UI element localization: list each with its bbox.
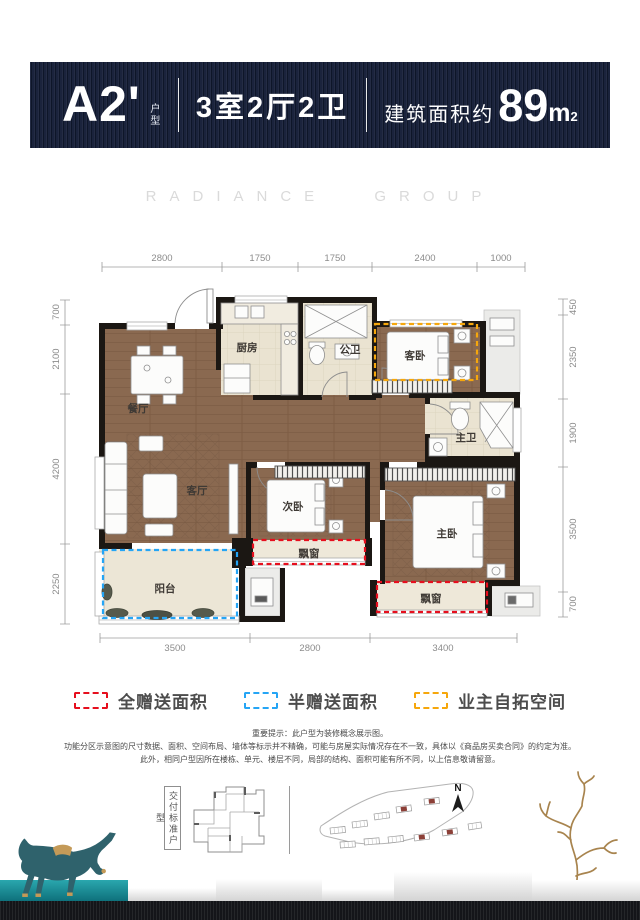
legend-item-full-gift: 全赠送面积 [74, 688, 208, 713]
header-divider [178, 78, 179, 132]
sofa [105, 442, 127, 534]
area-value: 89 [498, 83, 548, 128]
armchair [139, 436, 163, 451]
dim-right-4: 3500 [568, 518, 579, 539]
room-label-second-bedroom: 次卧 [283, 500, 304, 513]
dim-left-4: 2250 [51, 573, 62, 594]
footer-divider [289, 786, 290, 854]
disclaimer-line: 重要提示：此户型为装修概念展示图。 [30, 727, 610, 740]
dim-right-2: 2350 [568, 346, 579, 367]
legend: 全赠送面积 半赠送面积 业主自拓空间 [0, 688, 640, 713]
disclaimer-line: 此外，相同户型因所在楼栋、单元、楼层不同，局部的结构、面积可能有所不同，以上信息… [30, 753, 610, 766]
floor-plan: 餐厅 厨房 公卫 客卧 主卫 客厅 次卧 主卧 阳台 飘窗 飘窗 2800 17… [35, 252, 580, 652]
room-label-guest-bedroom: 客卧 [404, 349, 426, 362]
highlighted-building [396, 805, 412, 813]
site-plan-sketch: N [318, 780, 513, 868]
area-prefix: 建筑面积约 [384, 98, 494, 127]
dim-top-5: 1000 [490, 253, 511, 264]
dim-bottom-3: 3400 [432, 643, 453, 652]
owner-expand-swatch-icon [414, 692, 448, 709]
area-block: 建筑面积约 89 m 2 [384, 83, 578, 128]
dim-top-4: 2400 [414, 253, 435, 264]
dining-table [131, 356, 183, 394]
half-gift-swatch-icon [244, 692, 278, 709]
full-gift-swatch-icon [74, 692, 108, 709]
room-label-public-bath: 公卫 [340, 344, 361, 356]
dim-left-1: 700 [51, 304, 62, 320]
mini-floorplan-sketch [186, 782, 270, 860]
area-unit: m [548, 99, 570, 128]
dim-left-3: 4200 [51, 458, 62, 479]
unit-type-label: 户型 [146, 103, 161, 127]
toilet [452, 408, 469, 430]
room-label-master-bath: 主卫 [456, 431, 477, 444]
brochure-page: A2' 户型 3室2厅2卫 建筑面积约 89 m 2 RADIANCE GROU… [0, 0, 640, 920]
delivery-standard-label: 交付标准户型 [164, 786, 181, 850]
unit-code: A2' [62, 81, 141, 129]
highlighted-building [414, 833, 430, 841]
skyline-block [216, 879, 322, 902]
legend-item-half-gift: 半赠送面积 [244, 688, 378, 713]
room-label-kitchen: 厨房 [237, 341, 258, 354]
dim-right-3: 1900 [568, 422, 579, 443]
dim-top-2: 1750 [249, 253, 270, 264]
skyline-block [532, 880, 640, 902]
compass-icon: N [452, 783, 464, 812]
legend-label: 业主自拓空间 [458, 688, 566, 713]
dim-right-1: 450 [568, 299, 579, 315]
legend-label: 半赠送面积 [288, 688, 378, 713]
dim-bottom-2: 2800 [299, 643, 320, 652]
coffee-table [143, 474, 177, 518]
header-band: A2' 户型 3室2厅2卫 建筑面积约 89 m 2 [30, 62, 610, 148]
toilet [310, 346, 325, 365]
dark-footer-band [0, 901, 640, 920]
skyline-block [394, 872, 532, 902]
brand-watermark: RADIANCE GROUP [0, 188, 640, 205]
highlighted-building [424, 797, 440, 805]
skyline-block [128, 888, 216, 902]
disclaimer: 重要提示：此户型为装修概念展示图。 功能分区示意图的尺寸数据、面积、空间布局、墙… [30, 727, 610, 766]
dim-top-1: 2800 [151, 253, 172, 264]
room-label-balcony: 阳台 [155, 582, 176, 595]
dim-top-3: 1750 [324, 253, 345, 264]
area-superscript: 2 [571, 109, 578, 124]
room-label-dining: 餐厅 [127, 402, 149, 415]
room-label-living: 客厅 [186, 484, 208, 497]
dim-bottom-1: 3500 [164, 643, 185, 652]
compass-label: N [454, 783, 461, 794]
room-label-bay-window: 飘窗 [299, 547, 320, 560]
room-label-bay-window: 飘窗 [421, 592, 442, 605]
fridge [224, 364, 250, 393]
dim-right-5: 700 [568, 596, 579, 612]
horse-sculpture [10, 828, 122, 902]
disclaimer-line: 功能分区示意图的尺寸数据、面积、空间布局、墙体等标示并不精确，可能与房屋实际情况… [30, 740, 610, 753]
dim-left-2: 2100 [51, 348, 62, 369]
unit-code-block: A2' 户型 [62, 81, 161, 129]
highlighted-building [442, 828, 458, 836]
layout-summary: 3室2厅2卫 [196, 84, 349, 126]
room-label-master-bedroom: 主卧 [437, 527, 458, 540]
legend-label: 全赠送面积 [118, 688, 208, 713]
tv-cabinet [229, 464, 238, 534]
header-divider [366, 78, 367, 132]
legend-item-owner-expand: 业主自拓空间 [414, 688, 566, 713]
